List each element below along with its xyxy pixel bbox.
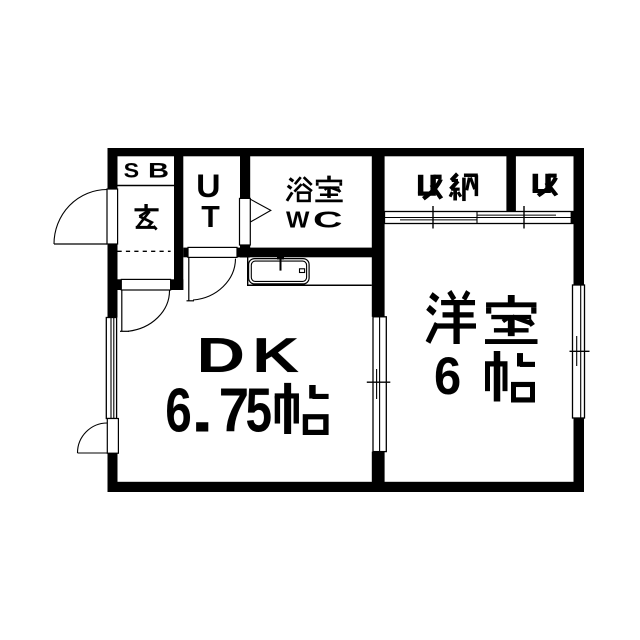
- svg-text:W: W: [286, 207, 310, 233]
- svg-text:C: C: [313, 207, 343, 233]
- svg-text:B: B: [148, 159, 169, 183]
- svg-text:T: T: [201, 200, 220, 234]
- svg-text:6: 6: [434, 347, 461, 406]
- svg-text:6: 6: [165, 376, 192, 446]
- svg-text:.: .: [190, 376, 214, 446]
- svg-text:U: U: [196, 168, 220, 204]
- svg-text:S: S: [124, 159, 140, 183]
- svg-text:5: 5: [245, 376, 272, 446]
